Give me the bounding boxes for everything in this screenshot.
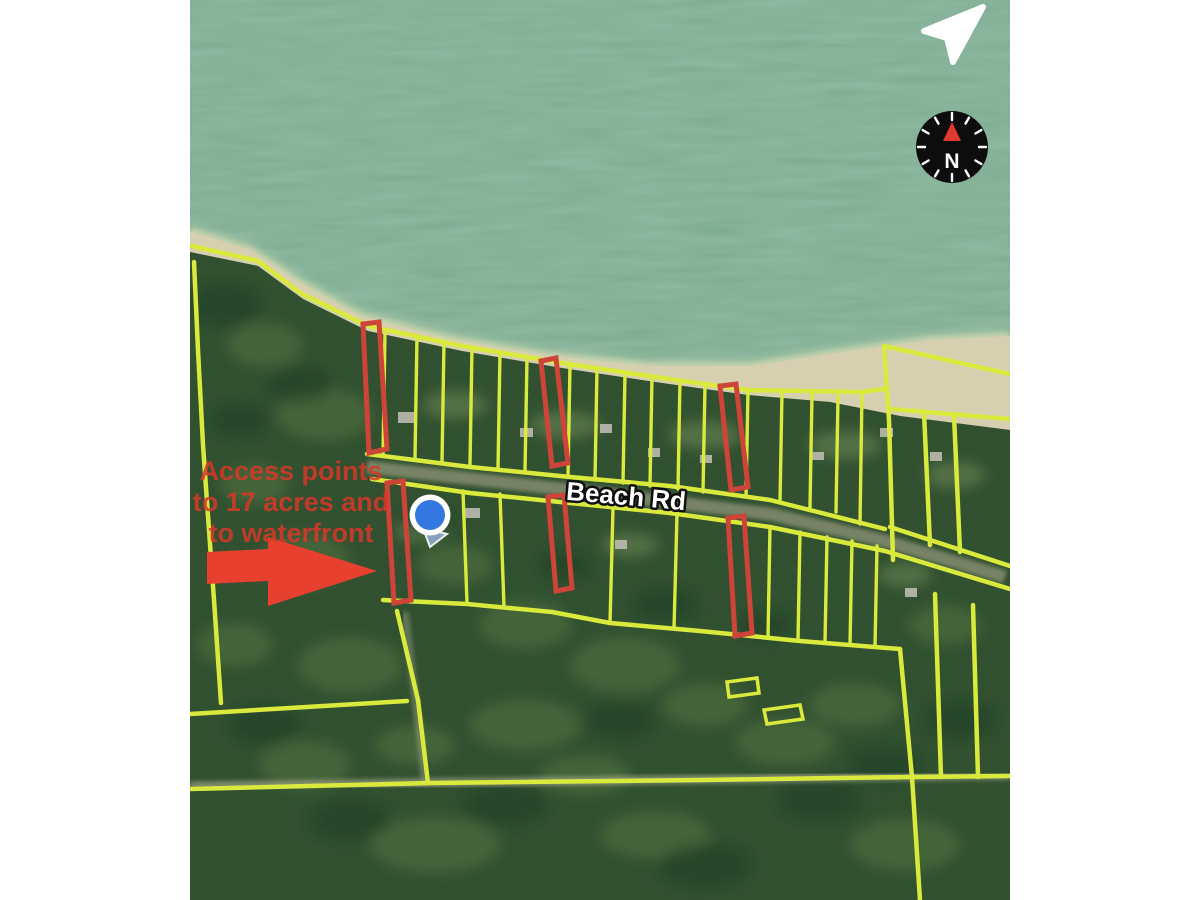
page-margin-right (1010, 0, 1200, 900)
lot-divider-line (810, 394, 812, 507)
lot-divider-line (442, 341, 444, 462)
lot-divider-line (836, 396, 838, 512)
access-annotation-line: to waterfront (190, 518, 392, 549)
lot-divider-line (703, 384, 705, 492)
lot-divider-line (525, 357, 527, 472)
access-annotation-line: to 17 acres and (190, 487, 392, 518)
map-canvas[interactable]: Beach Rd (190, 0, 1010, 900)
compass-north-label: N (944, 150, 959, 173)
lot-divider-line (860, 392, 862, 524)
page-margin-left (0, 0, 190, 900)
lot-divider-line (875, 546, 877, 647)
map-svg: Beach Rd (190, 0, 1010, 900)
lot-divider-line (470, 347, 472, 465)
lot-divider-line (825, 537, 827, 643)
lot-divider-line (623, 372, 625, 483)
access-annotation: Access points to 17 acres and to waterfr… (190, 456, 392, 549)
access-annotation-line: Access points (190, 456, 392, 487)
location-dot (415, 500, 445, 530)
lot-divider-line (650, 376, 652, 486)
compass-icon[interactable]: N (916, 111, 988, 183)
lot-divider-line (768, 527, 770, 638)
lot-divider-line (678, 380, 680, 489)
lot-divider-line (780, 392, 782, 502)
lot-divider-line (415, 336, 417, 459)
lot-divider-line (595, 368, 597, 480)
lot-divider-line (798, 532, 800, 641)
page-root: Beach Rd (0, 0, 1200, 900)
lot-divider-line (498, 352, 500, 469)
lot-divider-line (850, 541, 852, 645)
